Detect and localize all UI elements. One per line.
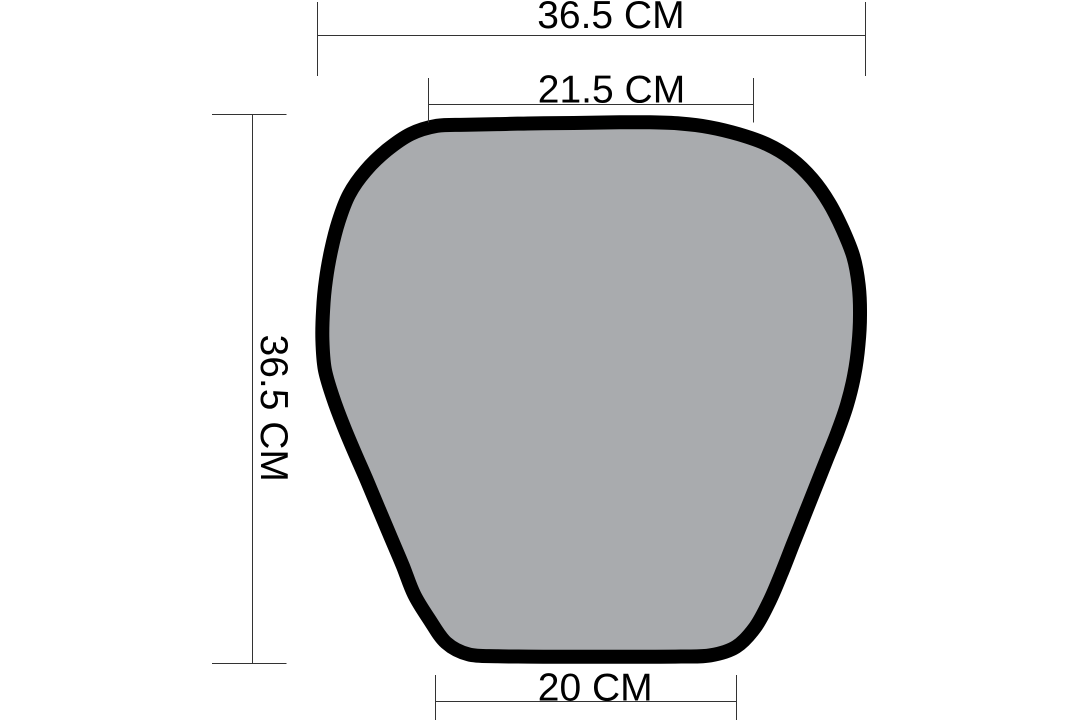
svg-text:21.5 CM: 21.5 CM	[538, 68, 685, 111]
svg-text:20 CM: 20 CM	[538, 667, 653, 710]
svg-text:36.5 CM: 36.5 CM	[537, 0, 684, 37]
svg-text:36.5 CM: 36.5 CM	[252, 335, 295, 482]
